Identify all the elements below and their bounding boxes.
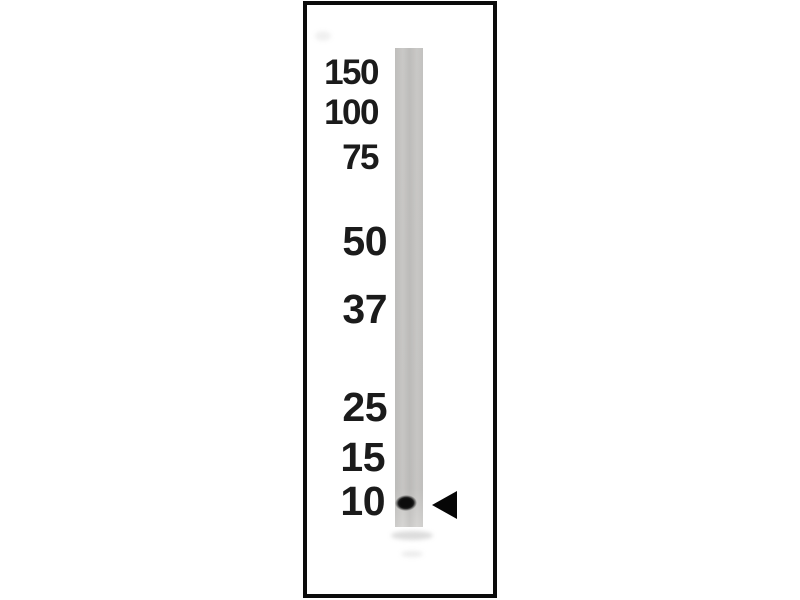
gel-lane	[395, 48, 423, 527]
mw-marker-15: 15	[340, 437, 385, 478]
figure-canvas: 150 100 75 50 37 25 15 10	[0, 0, 800, 600]
mw-marker-150: 150	[324, 55, 378, 90]
mw-marker-25: 25	[342, 387, 387, 428]
mw-marker-100: 100	[324, 95, 378, 130]
mw-marker-10: 10	[340, 481, 385, 522]
background-speck	[315, 31, 331, 41]
mw-marker-50: 50	[342, 221, 387, 262]
lane-smudge	[401, 551, 423, 557]
mw-marker-75: 75	[342, 140, 378, 175]
mw-marker-37: 37	[342, 289, 387, 330]
lane-smudge	[391, 531, 433, 540]
blot-panel: 150 100 75 50 37 25 15 10	[303, 1, 497, 598]
band-arrowhead-icon	[432, 491, 457, 519]
